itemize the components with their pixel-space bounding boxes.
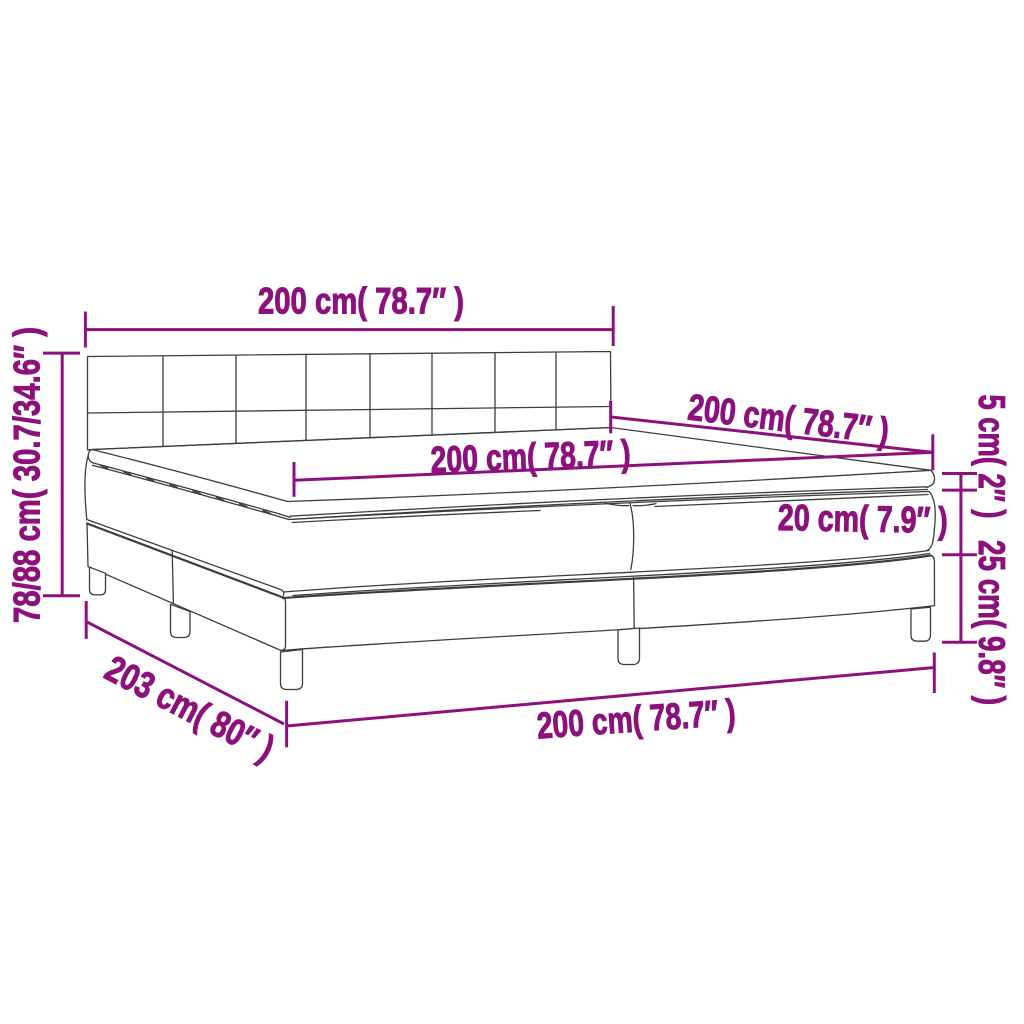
svg-text:5 cm( 2″ ): 5 cm( 2″ )	[971, 395, 1012, 519]
svg-text:200 cm( 78.7″ ): 200 cm( 78.7″ )	[258, 281, 464, 322]
svg-text:25 cm( 9.8″ ): 25 cm( 9.8″ )	[971, 540, 1012, 705]
svg-text:78/88 cm( 30.7/34.6″ ): 78/88 cm( 30.7/34.6″ )	[6, 327, 47, 623]
svg-text:20 cm( 7.9″ ): 20 cm( 7.9″ )	[777, 497, 948, 541]
svg-text:200 cm( 78.7″ ): 200 cm( 78.7″ )	[430, 433, 631, 481]
